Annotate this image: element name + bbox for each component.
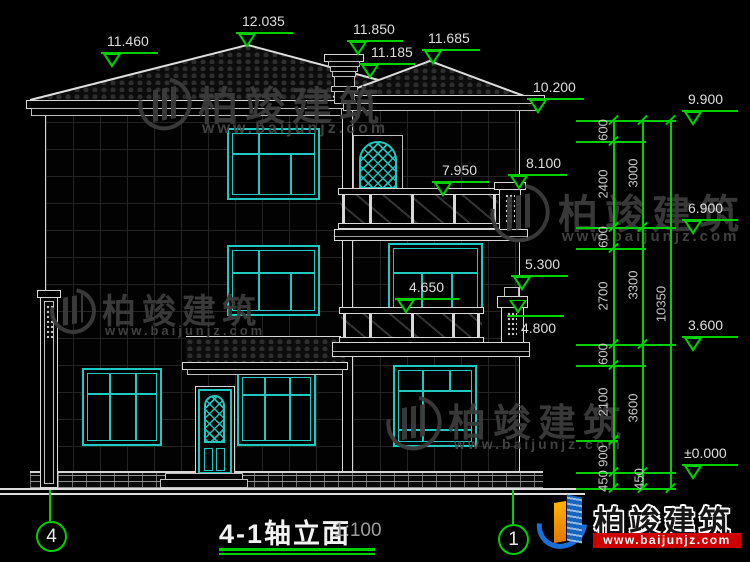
- dim-text: 3000: [626, 159, 641, 188]
- door-panel-left: [204, 448, 213, 471]
- dim-chain2-line: [642, 120, 644, 489]
- canopy-fascia-2: [187, 369, 343, 375]
- drawing-scale: 1:100: [334, 520, 382, 542]
- watermark-left: 柏竣建筑 www.baijunjz.com: [50, 284, 265, 340]
- watermark-top: 柏竣建筑 www.baijunjz.com: [138, 74, 400, 140]
- dim-text: 600: [596, 226, 611, 248]
- axis-line-right: [512, 490, 514, 524]
- dim-text: 450: [596, 470, 611, 492]
- ground-line-2: [0, 493, 585, 495]
- axis-line-left: [49, 490, 51, 521]
- balcony3f-glass: [340, 195, 498, 224]
- title-underline-2: [219, 553, 375, 555]
- arch-window: [359, 141, 397, 189]
- window-1f-left: [82, 368, 162, 446]
- dim-text: 600: [596, 343, 611, 365]
- dim-text: 3300: [626, 271, 641, 300]
- dim-text: 3600: [626, 394, 641, 423]
- door-panel-right: [216, 448, 225, 471]
- axis-bubble-right: 1: [498, 524, 529, 555]
- dim-text: 2400: [596, 170, 611, 199]
- balcony3f-top-rail: [338, 188, 500, 195]
- balcony2f-slab: [332, 342, 530, 357]
- window-1f-middle: [237, 372, 316, 446]
- door-step-2: [160, 479, 248, 488]
- entrance-canopy: [186, 336, 345, 363]
- footer-logo-url: www.baijunjz.com: [593, 533, 741, 548]
- dim-text: 450: [632, 468, 647, 490]
- ground-line: [0, 488, 585, 490]
- dim-text: 2100: [596, 388, 611, 417]
- dim-text-total: 10350: [654, 286, 669, 322]
- door-arch-lattice: [204, 395, 225, 443]
- dim-chain3-line: [670, 120, 672, 489]
- drawing-title: 4-1轴立面: [219, 512, 351, 551]
- elevation-drawing: 柏竣建筑 www.baijunjz.com 柏竣建筑 www.baijunjz.…: [0, 0, 750, 562]
- entrance-door: [195, 386, 235, 477]
- dim-text: 2700: [596, 282, 611, 311]
- axis-bubble-left: 4: [36, 521, 67, 552]
- dim-chain1-line: [613, 120, 615, 489]
- plinth-brick-band: [30, 473, 543, 488]
- dim-text: 600: [596, 119, 611, 141]
- dim-text: 900: [596, 445, 611, 467]
